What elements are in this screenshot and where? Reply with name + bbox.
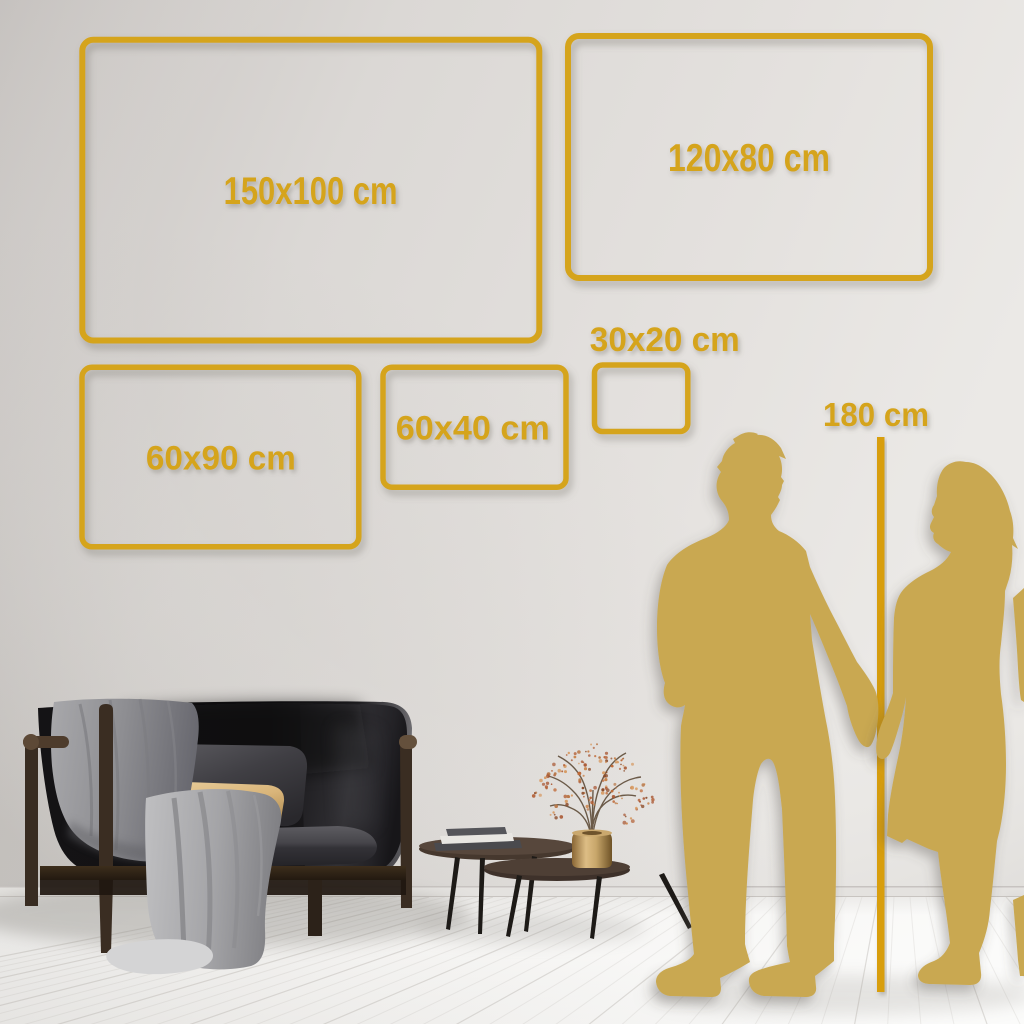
svg-text:60x40 cm: 60x40 cm [396,410,550,448]
svg-text:30x20 cm: 30x20 cm [590,321,740,359]
svg-text:150x100 cm: 150x100 cm [224,170,398,213]
svg-text:60x90 cm: 60x90 cm [146,439,296,477]
svg-text:180 cm: 180 cm [823,396,929,433]
svg-text:120x80 cm: 120x80 cm [668,137,830,180]
